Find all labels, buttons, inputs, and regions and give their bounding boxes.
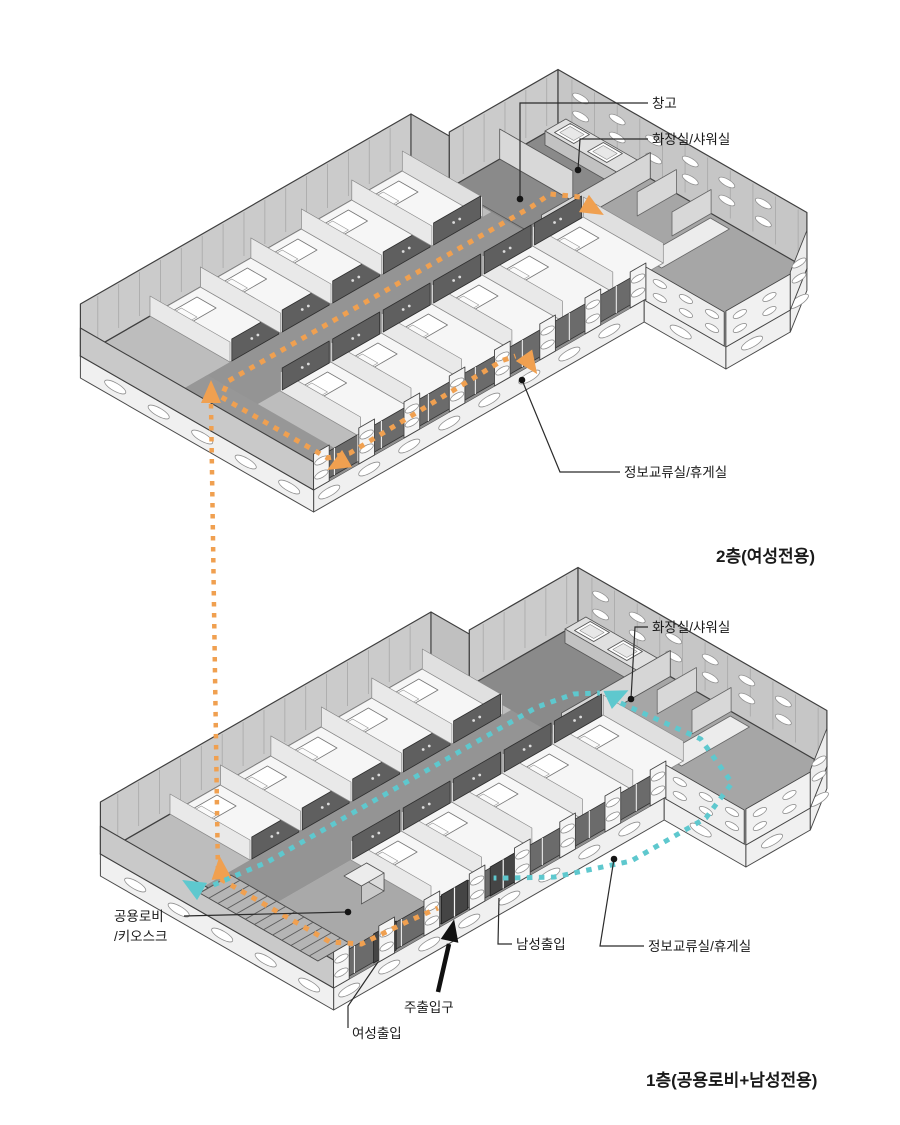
- isometric-floorplan-svg: 창고 화장실/샤워실 정보교류실/휴게실 2층(여성전용) 화장실/샤워실 공용…: [0, 0, 900, 1125]
- door-handle-icon: [478, 774, 481, 777]
- door-handle-icon: [579, 716, 582, 719]
- door-handle-icon: [351, 337, 354, 340]
- label-men-entrance: 남성출입: [516, 937, 566, 952]
- door-handle-icon: [351, 279, 354, 282]
- door-handle-icon: [307, 363, 310, 366]
- door-handle-icon: [276, 832, 279, 835]
- door-handle-icon: [402, 308, 405, 311]
- door-handle-icon: [452, 221, 455, 224]
- label-lounge-1f: 정보교류실/휴게실: [648, 939, 751, 954]
- door-handle-icon: [428, 803, 431, 806]
- door-handle-icon: [402, 250, 405, 253]
- door-handle-icon: [357, 334, 360, 337]
- door-handle-icon: [270, 835, 273, 838]
- door-handle-icon: [307, 305, 310, 308]
- door-handle-icon: [422, 748, 425, 751]
- leader-lounge-1f: [600, 859, 644, 946]
- door-handle-icon: [458, 218, 461, 221]
- door-handle-icon: [503, 250, 506, 253]
- label-lounge-2f: 정보교류실/휴게실: [624, 465, 727, 480]
- door-handle-icon: [573, 719, 576, 722]
- door-handle-icon: [377, 832, 380, 835]
- leader-dot-toilet-1f: [628, 696, 635, 703]
- leader-lounge-2f: [522, 380, 620, 472]
- label-lobby-line1: 공용로비: [114, 909, 164, 924]
- door-handle-icon: [321, 806, 324, 809]
- floor-1-title: 1층(공용로비+남성전용): [646, 1071, 817, 1090]
- door-handle-icon: [327, 803, 330, 806]
- leader-dot-lounge-1f: [611, 856, 618, 863]
- door-handle-icon: [559, 218, 562, 221]
- door-handle-icon: [371, 777, 374, 780]
- door-handle-icon: [553, 221, 556, 224]
- label-women-entrance: 여성출입: [352, 1026, 402, 1041]
- leader-dot-lobby: [345, 909, 352, 916]
- door-handle-icon: [301, 366, 304, 369]
- leader-dot-storage: [517, 196, 524, 203]
- door-handle-icon: [523, 748, 526, 751]
- label-lobby-line2: /키오스크: [114, 929, 167, 944]
- label-toilet-1f: 화장실/샤워실: [652, 620, 730, 635]
- door-handle-icon: [428, 745, 431, 748]
- door-handle-icon: [256, 334, 259, 337]
- door-handle-icon: [377, 774, 380, 777]
- door-handle-icon: [472, 777, 475, 780]
- label-toilet-2f: 화장실/샤워실: [652, 132, 730, 147]
- door-handle-icon: [371, 835, 374, 838]
- door-handle-icon: [472, 719, 475, 722]
- leader-dot-lounge-2f: [519, 377, 526, 384]
- floorplan-illustration: 창고 화장실/샤워실 정보교류실/휴게실 2층(여성전용) 화장실/샤워실 공용…: [0, 0, 900, 1125]
- main-entrance-arrow-shaft: [438, 944, 449, 992]
- floor-2-title: 2층(여성전용): [716, 547, 815, 566]
- leader-dot-toilet-2f: [575, 167, 582, 174]
- door-handle-icon: [301, 308, 304, 311]
- door-handle-icon: [422, 806, 425, 809]
- label-main-entrance: 주출입구: [404, 1000, 454, 1015]
- door-handle-icon: [529, 745, 532, 748]
- door-handle-icon: [250, 337, 253, 340]
- door-handle-icon: [408, 305, 411, 308]
- door-handle-icon: [458, 276, 461, 279]
- door-handle-icon: [509, 247, 512, 250]
- door-handle-icon: [478, 716, 481, 719]
- door-handle-icon: [408, 247, 411, 250]
- label-storage-2f: 창고: [652, 96, 677, 111]
- door-handle-icon: [452, 279, 455, 282]
- door-handle-icon: [357, 276, 360, 279]
